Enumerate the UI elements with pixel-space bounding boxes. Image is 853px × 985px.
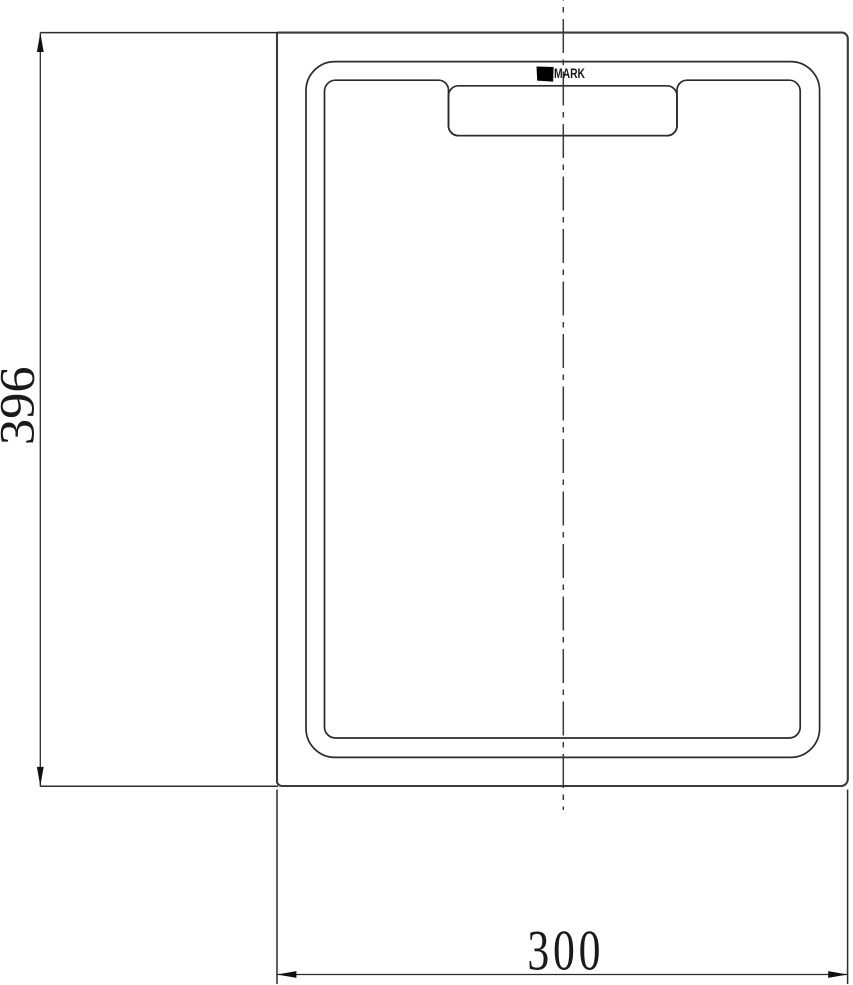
svg-text:300: 300: [527, 919, 604, 983]
svg-text:396: 396: [0, 366, 45, 445]
svg-text:MARK: MARK: [554, 65, 585, 81]
